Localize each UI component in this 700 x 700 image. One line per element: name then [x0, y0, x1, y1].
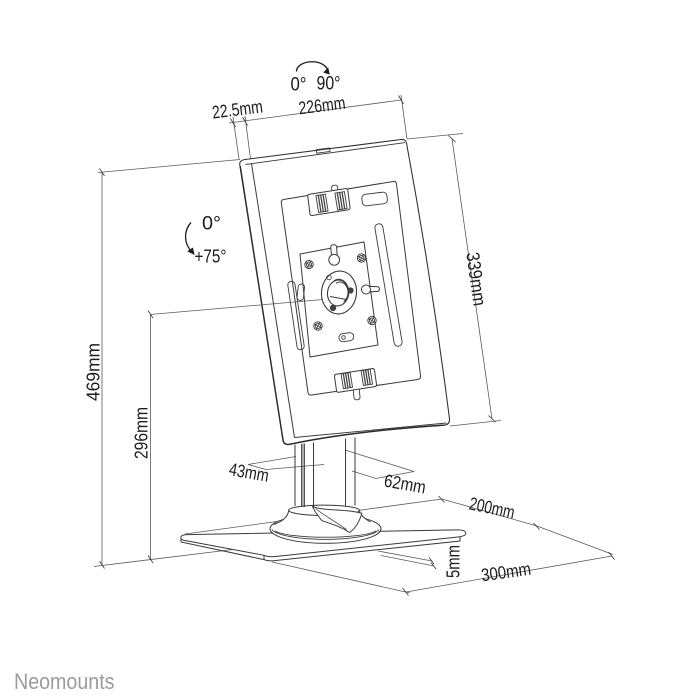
svg-text:469mm: 469mm — [83, 343, 104, 401]
svg-text:Neomounts: Neomounts — [14, 669, 115, 694]
svg-text:+75°: +75° — [195, 247, 227, 267]
svg-text:90°: 90° — [317, 74, 341, 95]
svg-text:0°: 0° — [291, 75, 307, 96]
svg-text:296mm: 296mm — [131, 407, 152, 459]
svg-text:5mm: 5mm — [444, 545, 464, 578]
svg-text:0°: 0° — [202, 214, 221, 235]
